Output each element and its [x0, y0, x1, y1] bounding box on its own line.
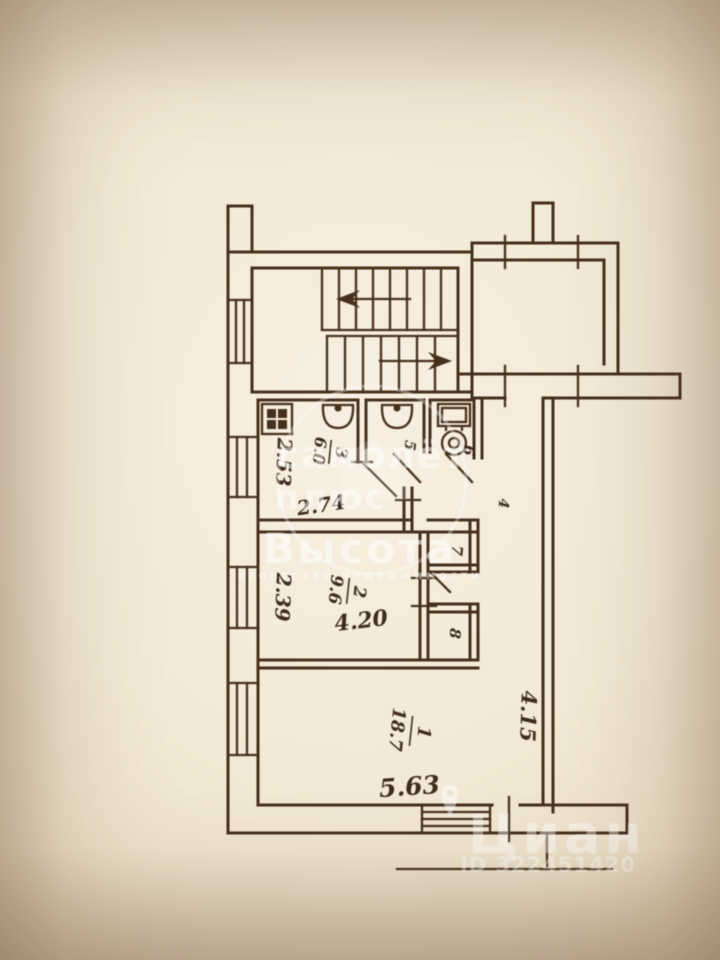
- watermark-samolet-word2: плюс: [275, 478, 388, 518]
- dim-5-63: 5.63: [378, 770, 441, 803]
- washbasin-icon: [382, 405, 412, 429]
- window-kitchen: [228, 437, 258, 497]
- room4-number: 4: [495, 498, 512, 509]
- room1-area: 18.7: [384, 706, 410, 752]
- watermark-cian-id: ID 322451420: [460, 853, 636, 877]
- staircase: [322, 268, 458, 392]
- room2-number: 2: [348, 584, 369, 599]
- room1-label: 1 18.7: [384, 706, 436, 755]
- dim-4-15: 4.15: [515, 690, 542, 742]
- floor-plan-photo: 3 6.0 2 9.6 1 18.7 4 5 6 7 8 2.53 2.74: [0, 0, 720, 960]
- window-stairwell: [228, 300, 252, 363]
- kitchen-sink-icon: [323, 405, 353, 429]
- stairs-lower-flight: [345, 337, 435, 392]
- room8-number: 8: [445, 627, 464, 640]
- room1-number: 1: [412, 725, 434, 740]
- window-room1-left: [228, 683, 258, 755]
- stove-icon: [262, 404, 292, 434]
- dim-4-20: 4.20: [333, 605, 390, 637]
- watermark-vysota: Высота агентство недвижимости: [238, 524, 483, 582]
- watermark-vysota-subtitle: агентство недвижимости: [238, 568, 483, 582]
- outer-walls: [228, 203, 680, 833]
- watermark-vysota-title: Высота: [263, 524, 457, 573]
- watermark-samolet-word1: самолёт: [277, 434, 467, 477]
- floor-plan-drawing: 3 6.0 2 9.6 1 18.7 4 5 6 7 8 2.53 2.74: [0, 0, 720, 960]
